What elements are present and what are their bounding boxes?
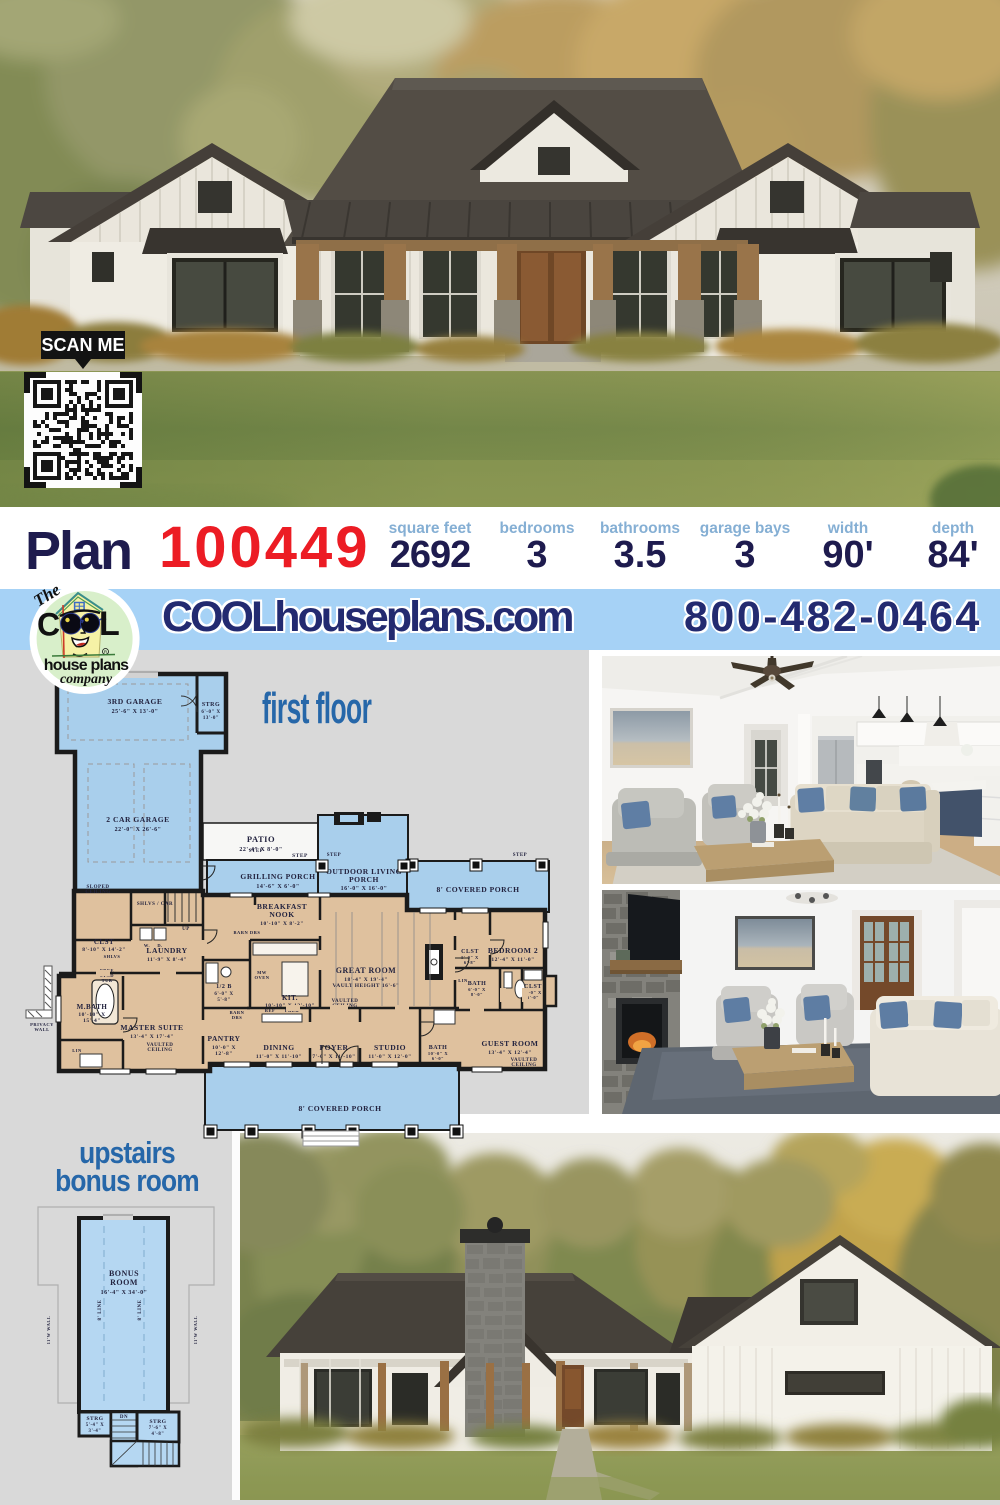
svg-text:12'-4" X 11'-0": 12'-4" X 11'-0" xyxy=(491,957,534,963)
svg-text:6'-8": 6'-8" xyxy=(464,960,476,965)
svg-text:WALL: WALL xyxy=(34,1027,49,1032)
svg-text:STRG: STRG xyxy=(87,1416,104,1422)
svg-text:DRS: DRS xyxy=(232,1015,243,1020)
svg-text:OVEN: OVEN xyxy=(254,975,269,980)
svg-text:7'-0" X 11'-10": 7'-0" X 11'-10" xyxy=(312,1054,355,1060)
svg-text:15'-4": 15'-4" xyxy=(83,1018,101,1024)
svg-text:PORCH: PORCH xyxy=(349,875,379,884)
svg-text:8'-10" X 14'-2": 8'-10" X 14'-2" xyxy=(82,947,126,953)
svg-text:CLST: CLST xyxy=(94,938,114,946)
svg-text:11'-9" X 8'-4": 11'-9" X 8'-4" xyxy=(147,957,187,963)
svg-text:M.BATH: M.BATH xyxy=(77,1003,108,1011)
svg-text:PATIO: PATIO xyxy=(247,834,275,844)
svg-text:CEILING: CEILING xyxy=(85,890,110,895)
svg-text:13'-0": 13'-0" xyxy=(203,716,219,721)
svg-text:25'-6" X 13'-0": 25'-6" X 13'-0" xyxy=(112,709,159,715)
svg-text:GUEST ROOM: GUEST ROOM xyxy=(482,1039,539,1048)
svg-text:LIN: LIN xyxy=(72,1048,82,1053)
svg-text:SHLVS: SHLVS xyxy=(104,954,121,959)
svg-text:CEILING: CEILING xyxy=(147,1048,172,1053)
svg-text:STEP: STEP xyxy=(513,853,528,858)
svg-text:L: L xyxy=(99,605,120,643)
svg-text:16'-4" X 34'-0": 16'-4" X 34'-0" xyxy=(101,1290,148,1296)
svg-text:STEP: STEP xyxy=(327,853,342,858)
svg-text:6'-0" X: 6'-0" X xyxy=(214,992,233,997)
svg-text:STEP: STEP xyxy=(249,849,264,854)
svg-text:5'-8": 5'-8" xyxy=(217,998,230,1003)
svg-text:5'-4" X: 5'-4" X xyxy=(86,1423,105,1428)
svg-text:8'-0": 8'-0" xyxy=(471,992,483,997)
svg-text:1/2 B: 1/2 B xyxy=(216,984,232,990)
svg-text:DN: DN xyxy=(120,1415,128,1420)
svg-text:BARN DRS: BARN DRS xyxy=(234,930,261,935)
svg-text:VAULT HEIGHT 16'-6": VAULT HEIGHT 16'-6" xyxy=(332,983,399,989)
svg-text:UP: UP xyxy=(182,927,190,932)
svg-text:11'-0" X 11'-10": 11'-0" X 11'-10" xyxy=(256,1054,302,1060)
svg-text:2 CAR GARAGE: 2 CAR GARAGE xyxy=(106,815,169,824)
svg-text:11'W WALL: 11'W WALL xyxy=(193,1316,198,1345)
svg-text:STRG: STRG xyxy=(150,1419,167,1425)
svg-text:8' COVERED PORCH: 8' COVERED PORCH xyxy=(436,885,519,894)
svg-text:STRG: STRG xyxy=(202,702,220,708)
svg-text:3'-4": 3'-4" xyxy=(89,1429,102,1434)
svg-text:PANTRY: PANTRY xyxy=(208,1034,241,1043)
svg-text:13'-4" X 12'-4": 13'-4" X 12'-4" xyxy=(488,1050,532,1056)
svg-text:KIT.: KIT. xyxy=(282,994,298,1002)
svg-text:BONUS: BONUS xyxy=(109,1269,139,1278)
svg-text:6'-0" X: 6'-0" X xyxy=(201,710,220,715)
svg-text:11'W WALL: 11'W WALL xyxy=(46,1316,51,1345)
svg-text:NOOK: NOOK xyxy=(269,910,294,919)
svg-text:GREAT ROOM: GREAT ROOM xyxy=(336,966,396,975)
svg-text:BEDROOM 2: BEDROOM 2 xyxy=(488,946,538,955)
svg-text:22'-0" X 26'-6": 22'-0" X 26'-6" xyxy=(115,827,162,833)
svg-text:STUDIO: STUDIO xyxy=(374,1043,406,1052)
svg-text:16'-0" X 16'-0": 16'-0" X 16'-0" xyxy=(341,886,388,892)
svg-text:7'-6" X: 7'-6" X xyxy=(149,1426,168,1431)
svg-text:12'-8": 12'-8" xyxy=(215,1051,233,1057)
svg-text:C: C xyxy=(37,607,60,643)
svg-text:14'-6" X 6'-0": 14'-6" X 6'-0" xyxy=(256,884,299,890)
svg-text:LAUNDRY: LAUNDRY xyxy=(146,946,187,955)
svg-text:company: company xyxy=(60,672,113,687)
svg-text:REF: REF xyxy=(265,1008,276,1013)
svg-text:TUB: TUB xyxy=(102,978,113,983)
svg-text:6'-0": 6'-0" xyxy=(432,1056,444,1061)
svg-text:8' LINE: 8' LINE xyxy=(138,1299,143,1320)
svg-text:4'-8": 4'-8" xyxy=(152,1432,165,1437)
svg-text:CEILING: CEILING xyxy=(511,1063,536,1068)
svg-text:6'-0": 6'-0" xyxy=(527,995,539,1000)
svg-text:ROOM: ROOM xyxy=(110,1278,138,1287)
svg-text:8' LINE: 8' LINE xyxy=(98,1299,103,1320)
svg-text:STEP: STEP xyxy=(292,853,308,859)
svg-text:GRILLING PORCH: GRILLING PORCH xyxy=(240,872,315,881)
svg-text:DINING: DINING xyxy=(263,1043,294,1052)
svg-text:SHLVS / CAR: SHLVS / CAR xyxy=(137,902,173,907)
svg-text:11'-0" X 12'-0": 11'-0" X 12'-0" xyxy=(368,1054,411,1060)
svg-text:10'-10" X 8'-2": 10'-10" X 8'-2" xyxy=(260,921,304,927)
svg-text:8' COVERED PORCH: 8' COVERED PORCH xyxy=(298,1104,381,1113)
svg-text:LIN: LIN xyxy=(458,978,468,983)
svg-text:3RD GARAGE: 3RD GARAGE xyxy=(108,697,163,706)
svg-text:13'-4" X 17'-4": 13'-4" X 17'-4" xyxy=(130,1034,174,1040)
